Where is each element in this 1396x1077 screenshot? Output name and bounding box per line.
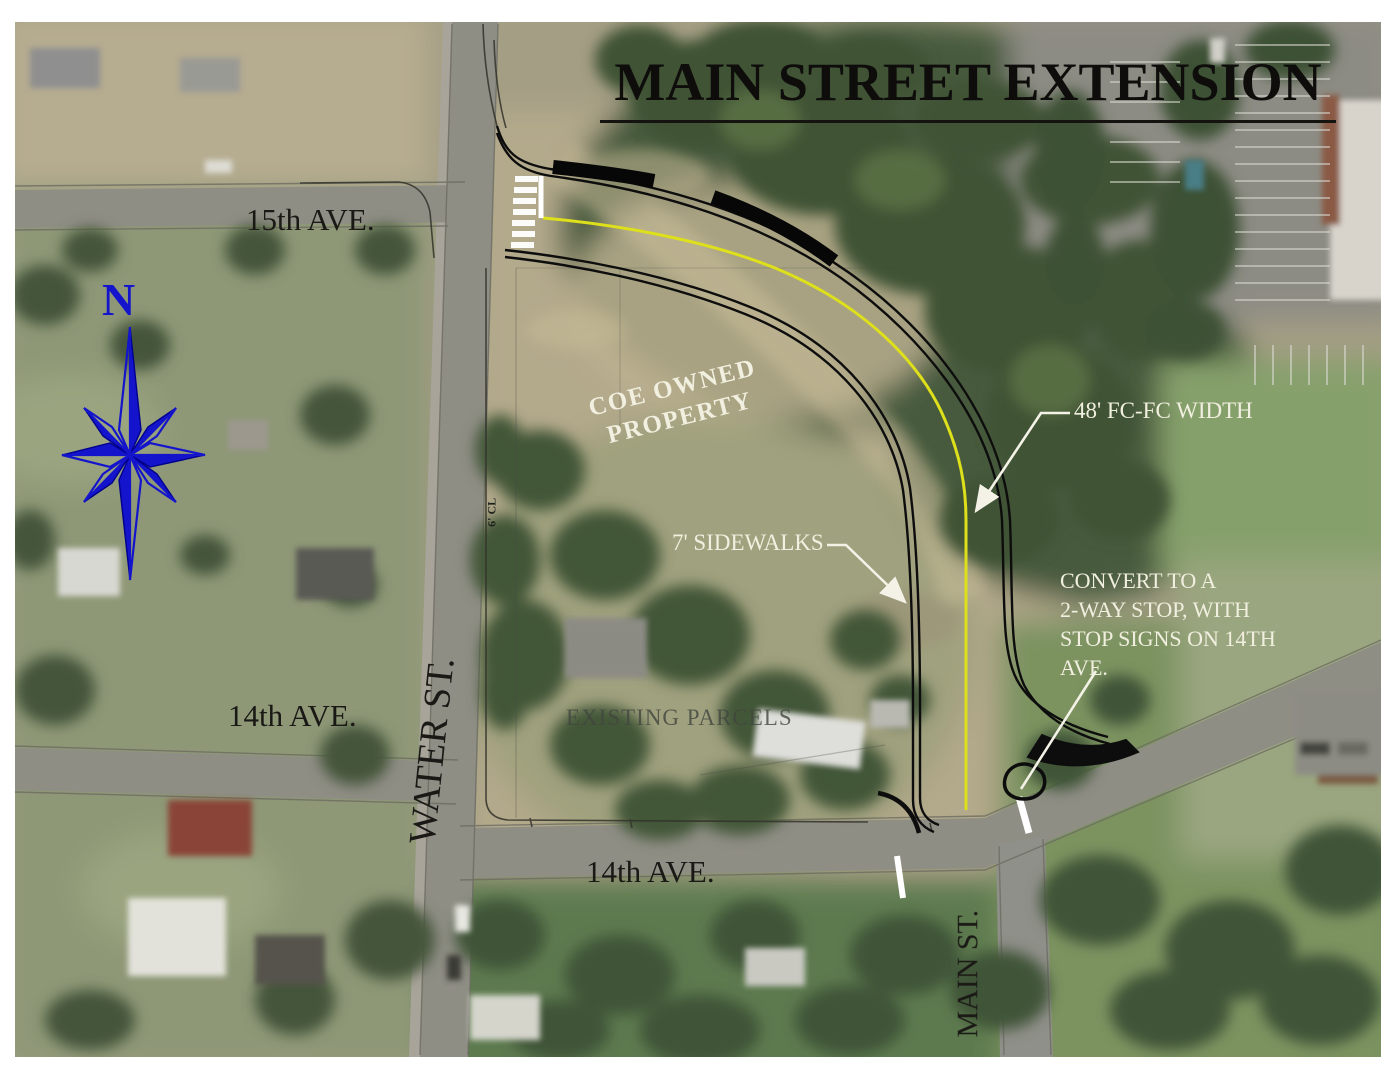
annotation-sidewalks: 7' SIDEWALKS (672, 531, 824, 555)
annotation-convert-line3: STOP SIGNS ON 14TH (1060, 624, 1276, 653)
annotation-convert-stop: CONVERT TO A 2-WAY STOP, WITH STOP SIGNS… (1060, 566, 1276, 682)
street-label-14th-ave-west: 14th AVE. (228, 700, 357, 733)
plan-sheet: { "title": { "text": "MAIN STREET EXTENS… (0, 0, 1396, 1077)
annotation-fc-width: 48' FC-FC WIDTH (1074, 399, 1253, 423)
street-label-15th-ave: 15th AVE. (246, 204, 375, 237)
annotation-cl-offset: 6' CL (486, 482, 499, 542)
annotation-convert-line4: AVE. (1060, 653, 1276, 682)
compass-north-label: N (102, 276, 135, 324)
street-label-14th-ave-center: 14th AVE. (586, 856, 715, 889)
annotation-convert-line1: CONVERT TO A (1060, 566, 1276, 595)
sheet-title: MAIN STREET EXTENSION (600, 54, 1336, 123)
annotation-convert-line2: 2-WAY STOP, WITH (1060, 595, 1276, 624)
annotation-existing-parcels: EXISTING PARCELS (566, 706, 793, 730)
street-label-main-st: MAIN ST. (952, 874, 984, 1074)
